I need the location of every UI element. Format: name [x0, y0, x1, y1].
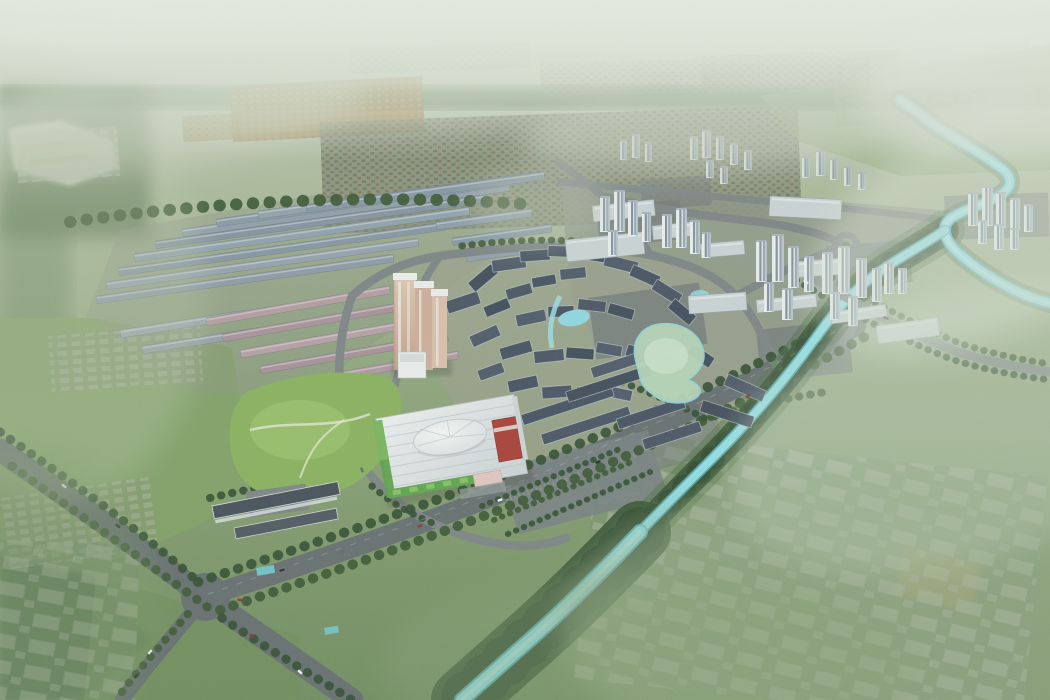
aerial-rendering-canvas [0, 0, 1050, 700]
township-aerial-rendering [0, 0, 1050, 700]
film-grain [0, 0, 1050, 700]
